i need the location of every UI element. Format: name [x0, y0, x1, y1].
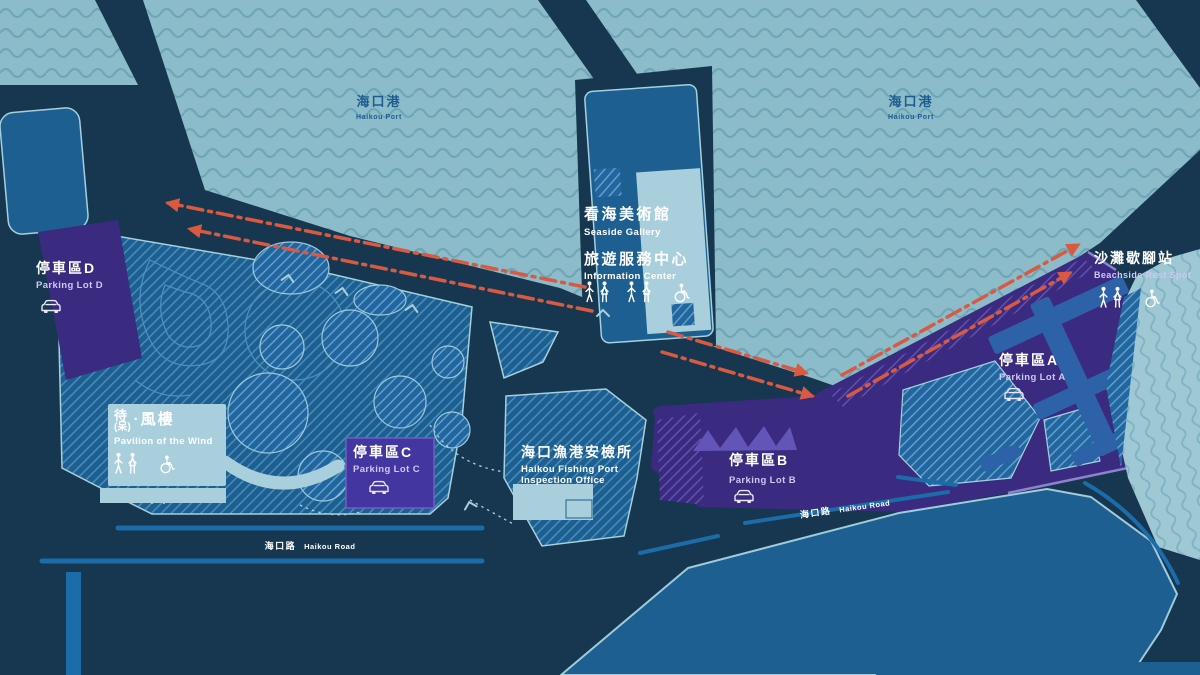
- rest-spot-label-zh: 沙灘歇腳站: [1094, 250, 1191, 268]
- road-label-west-zh: 海口路: [265, 539, 297, 552]
- south-strip: [876, 662, 1200, 675]
- pavilion-label-zh-rest: ·風樓: [134, 411, 175, 430]
- car-icon: [1001, 386, 1027, 402]
- person-icon: [584, 280, 595, 304]
- car-icon: [366, 479, 392, 495]
- parking-b-label: 停車區B Parking Lot B: [729, 452, 796, 486]
- inspection-label-en1: Haikou Fishing Port: [521, 464, 633, 476]
- gallery-icons: [584, 280, 691, 304]
- port-label-east: 海口港 Haikou Port: [866, 94, 956, 123]
- map-canvas: [0, 0, 1200, 675]
- road-label-west: 海口路 Haikou Road: [255, 539, 365, 552]
- gallery-label: 看海美術館 Seaside Gallery 旅遊服務中心 Information…: [584, 206, 689, 283]
- parking-a-label-en: Parking Lot A: [999, 372, 1066, 384]
- pavilion-label-zh-main: 待: [114, 409, 131, 423]
- haikou-port-map: 海口港 Haikou Port 海口港 Haikou Port 看海美術館 Se…: [0, 0, 1200, 675]
- wheelchair-icon: [156, 455, 176, 475]
- parking-a-label: 停車區A Parking Lot A: [999, 352, 1066, 383]
- parking-b-label-en: Parking Lot B: [729, 475, 796, 487]
- parking-a-car: [1001, 386, 1027, 402]
- parking-a-label-zh: 停車區A: [999, 352, 1066, 370]
- restroom-female-icon: [127, 452, 138, 475]
- west-block: [0, 107, 89, 236]
- port-label-west: 海口港 Haikou Port: [334, 94, 424, 123]
- inspection-label-en2: Inspection Office: [521, 475, 633, 487]
- parking-d-label-en: Parking Lot D: [36, 280, 103, 292]
- parking-c-car: [366, 479, 392, 495]
- restroom-male-icon: [113, 452, 124, 475]
- port-label-west-en: Haikou Port: [334, 114, 424, 123]
- wheelchair-icon: [1141, 289, 1161, 309]
- restroom-female-icon: [641, 280, 652, 304]
- person-icon: [599, 280, 610, 304]
- car-icon: [731, 488, 757, 504]
- pavilion-label-zh-alt: (呆): [114, 423, 131, 434]
- inspection-label-zh: 海口漁港安檢所: [521, 444, 633, 462]
- parking-d-label-zh: 停車區D: [36, 260, 103, 278]
- restroom-female-icon: [1112, 286, 1123, 309]
- pavilion-icons: [113, 452, 176, 475]
- parking-d-label: 停車區D Parking Lot D: [36, 260, 103, 291]
- port-label-east-zh: 海口港: [866, 94, 956, 110]
- port-label-west-zh: 海口港: [334, 94, 424, 110]
- pavilion-label: 待 (呆) ·風樓 Pavilion of the Wind: [114, 409, 213, 448]
- parking-c-label-en: Parking Lot C: [353, 464, 420, 476]
- parking-b-hatch: [657, 413, 704, 505]
- rest-spot-icons: [1098, 286, 1161, 309]
- car-icon: [38, 298, 64, 314]
- parking-b-car: [731, 488, 757, 504]
- restroom-male-icon: [626, 280, 637, 304]
- wheelchair-icon: [670, 283, 691, 304]
- info-center-label-zh: 旅遊服務中心: [584, 251, 689, 270]
- pavilion-label-en: Pavilion of the Wind: [114, 436, 213, 448]
- road-label-west-en: Haikou Road: [304, 542, 355, 551]
- parking-c-label-zh: 停車區C: [353, 444, 420, 462]
- gallery-label-zh: 看海美術館: [584, 206, 689, 225]
- parking-b-label-zh: 停車區B: [729, 452, 796, 470]
- rest-spot-label: 沙灘歇腳站 Beachside Rest Spot: [1094, 250, 1191, 281]
- rest-spot-label-en: Beachside Rest Spot: [1094, 270, 1191, 281]
- gallery-label-en: Seaside Gallery: [584, 227, 689, 239]
- port-label-east-en: Haikou Port: [866, 114, 956, 123]
- inspection-label: 海口漁港安檢所 Haikou Fishing Port Inspection O…: [521, 444, 633, 487]
- restroom-male-icon: [1098, 286, 1109, 309]
- parking-d-car: [38, 298, 64, 314]
- parking-c-label: 停車區C Parking Lot C: [353, 444, 420, 475]
